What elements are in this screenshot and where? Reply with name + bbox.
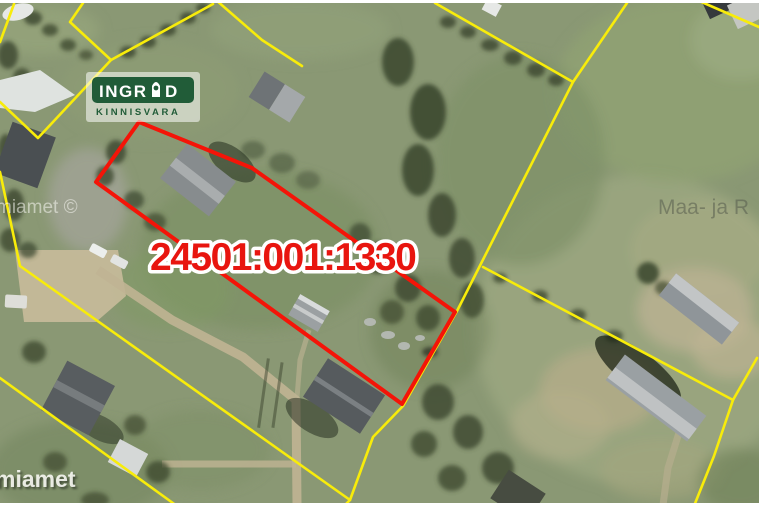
top-border — [0, 0, 759, 3]
aerial-map-image: 24501:001:1330 miamet © miamet Maa- ja R… — [0, 0, 759, 506]
cadastral-number-label: 24501:001:1330 — [150, 236, 416, 279]
logo-tower-icon — [152, 82, 160, 97]
logo: INGR D KINNISVARA — [86, 72, 200, 122]
aerial-photo: 24501:001:1330 miamet © miamet Maa- ja R… — [0, 0, 759, 506]
watermark-bottom-left: miamet — [0, 466, 76, 492]
watermark-mid-right: Maa- ja R — [658, 196, 749, 219]
logo-brand-right: D — [165, 82, 179, 101]
logo-subtitle: KINNISVARA — [96, 107, 180, 118]
logo-brand-left: INGR — [99, 82, 148, 101]
watermark-mid-left: miamet © — [0, 197, 78, 218]
